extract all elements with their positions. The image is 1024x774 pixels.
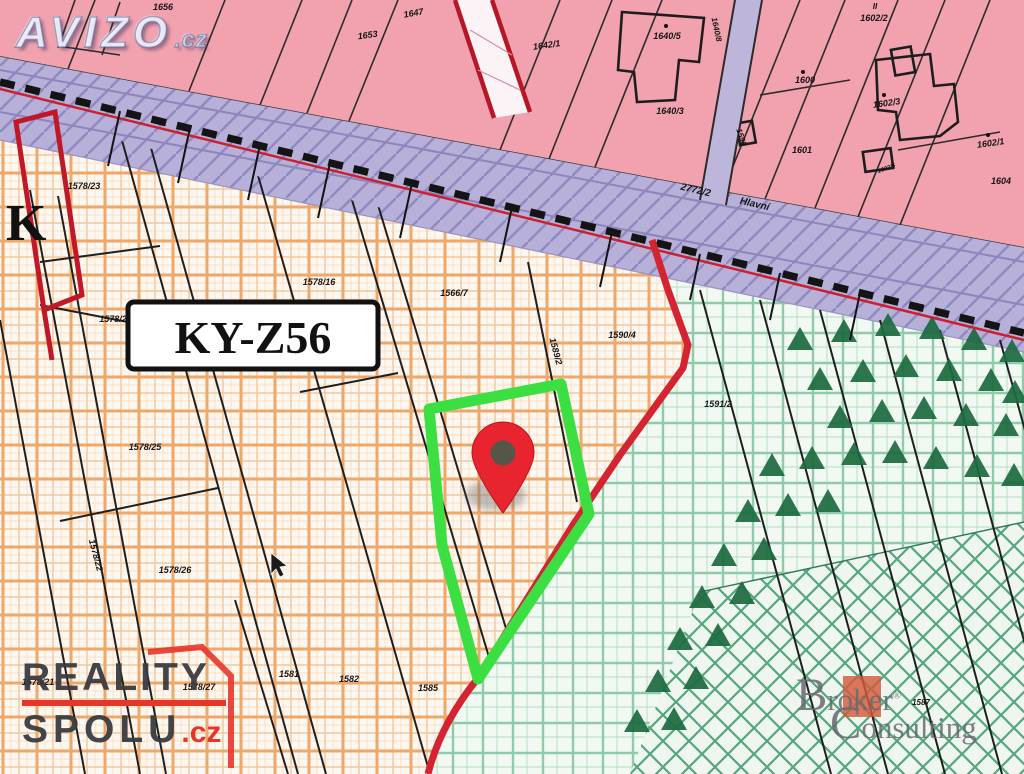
parcel-label: 1602/2	[860, 13, 888, 23]
parcel-label: 1640/5	[653, 31, 682, 41]
avizo-watermark-text: AVIZO	[16, 8, 172, 57]
parcel-label: 1582	[339, 674, 359, 684]
parcel-label: 1600	[795, 75, 815, 85]
parcel-label: 1590/4	[608, 330, 636, 340]
broker-watermark-word2: Consulting	[830, 696, 977, 750]
reality-watermark-line2: SPOLU.cz	[22, 710, 226, 749]
reality-watermark-suffix: .cz	[181, 716, 221, 749]
parcel-label: 1601	[792, 145, 812, 155]
reality-watermark-underline	[22, 700, 226, 706]
parcel-label: 1578/26	[159, 565, 193, 575]
parcel-label: 1578/2	[99, 314, 127, 324]
parcel-label: 1640/3	[656, 106, 684, 116]
reality-spolu-watermark: REALITY SPOLU.cz	[22, 658, 226, 749]
parcel-label: 1591/2	[704, 399, 732, 409]
broker-consulting-watermark: Broker® Consulting	[792, 658, 1024, 768]
parcel-label: II	[873, 2, 878, 11]
sheet-letter: K	[6, 195, 47, 252]
parcel-label: 1585	[418, 683, 439, 693]
parcel-label: 1604	[991, 176, 1011, 186]
zone-label: KY-Z56	[175, 312, 332, 363]
parcel-label: 1581	[279, 669, 299, 679]
avizo-watermark-suffix: .cz	[174, 26, 208, 52]
parcel-label: 1578/25	[129, 442, 163, 452]
parcel-label: 1578/23	[68, 181, 101, 191]
parcel-label: 1566/7	[440, 288, 469, 298]
reality-watermark-line1: REALITY	[22, 658, 226, 697]
parcel-label: 1578/16	[303, 277, 337, 287]
cadastral-map[interactable]: KY-Z56 K 1656165316471642/11640/51640/81…	[0, 0, 1024, 774]
avizo-watermark: AVIZO.cz	[16, 8, 208, 58]
zone-box: KY-Z56	[128, 302, 378, 369]
